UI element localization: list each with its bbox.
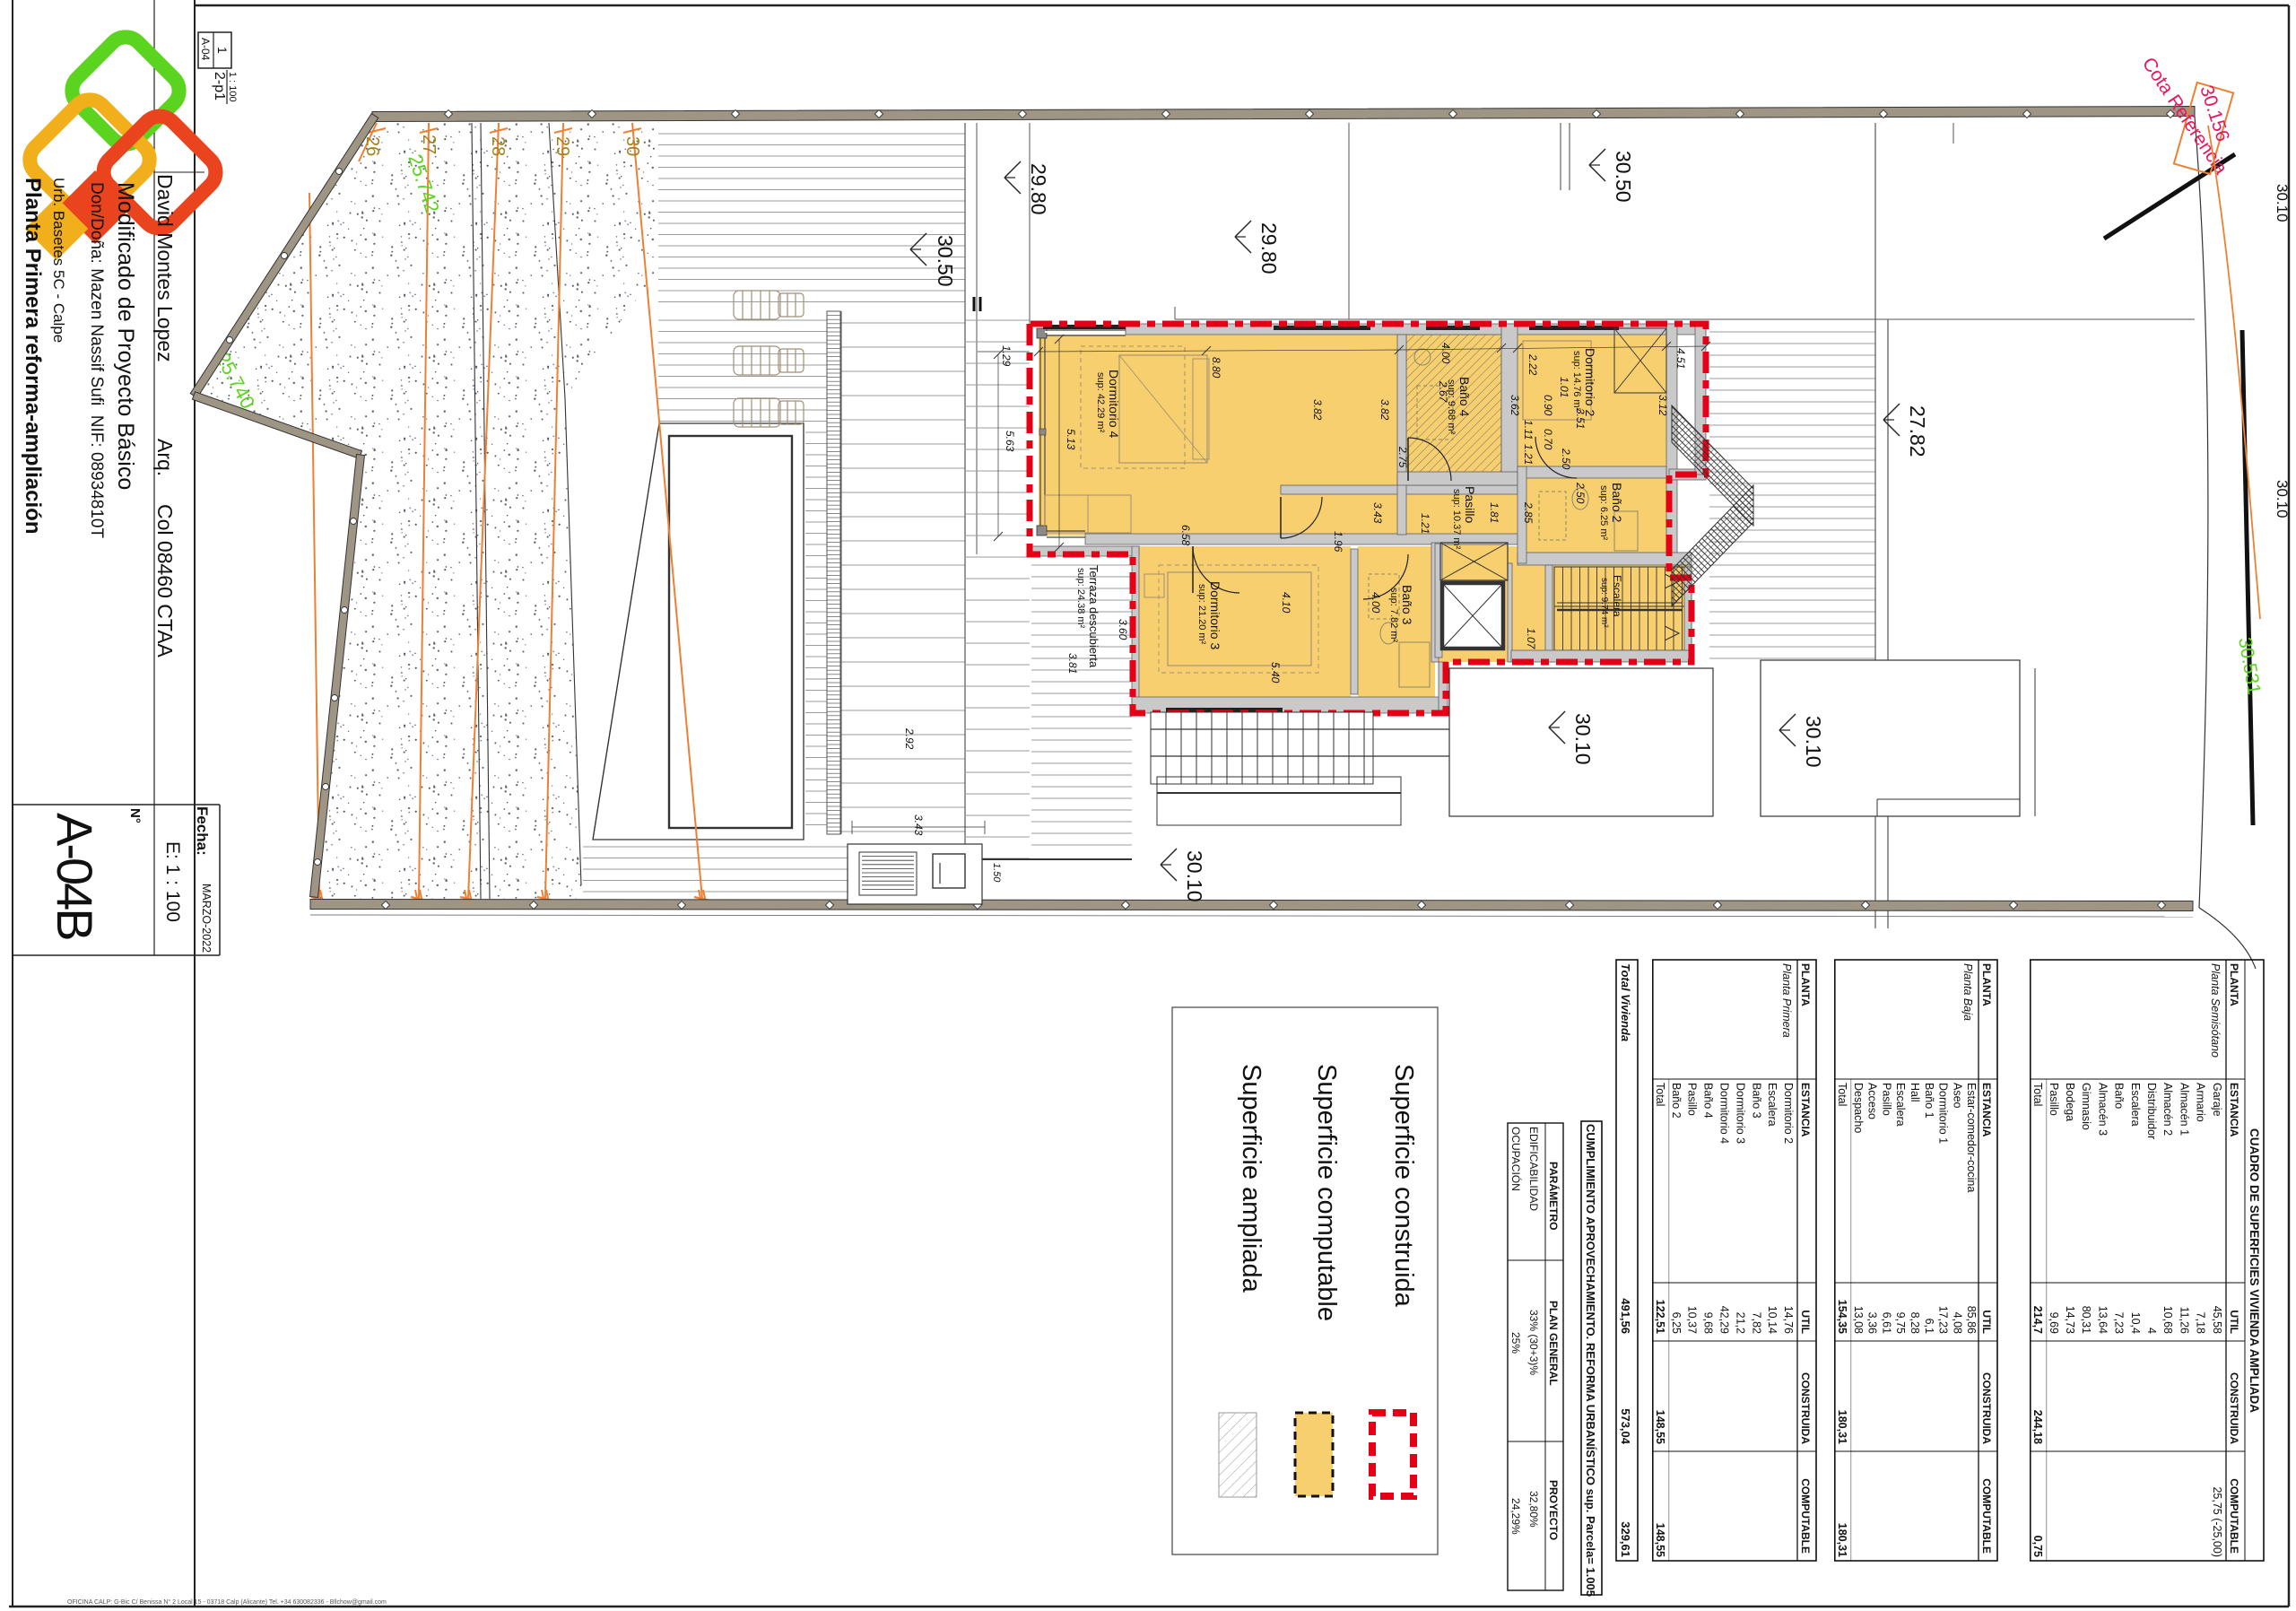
- svg-text:OCUPACIÓN: OCUPACIÓN: [1509, 1127, 1523, 1191]
- svg-text:Almacén 3: Almacén 3: [2096, 1083, 2109, 1136]
- svg-text:Total: Total: [2031, 1083, 2044, 1106]
- svg-text:33% (30+3)%: 33% (30+3)%: [1527, 1310, 1540, 1375]
- svg-text:CONSTRUIDA: CONSTRUIDA: [1980, 1372, 1993, 1444]
- svg-text:1.07: 1.07: [1525, 628, 1537, 650]
- svg-text:COMPUTABLE: COMPUTABLE: [1980, 1478, 1993, 1554]
- svg-text:Baño 1: Baño 1: [1923, 1083, 1935, 1119]
- svg-text:4,08: 4,08: [1951, 1312, 1963, 1334]
- svg-text:A-04: A-04: [199, 38, 212, 61]
- svg-text:30.50: 30.50: [934, 235, 957, 287]
- svg-text:Estar-comedor-cocina: Estar-comedor-cocina: [1965, 1083, 1978, 1192]
- svg-text:3.43: 3.43: [912, 814, 925, 836]
- svg-text:sup: 14.76 m²: sup: 14.76 m²: [1571, 351, 1582, 412]
- svg-text:Pasillo: Pasillo: [1880, 1083, 1892, 1116]
- svg-text:Col 08460 CTAA: Col 08460 CTAA: [153, 504, 177, 658]
- svg-text:sup: 24.38 m²: sup: 24.38 m²: [1075, 568, 1086, 629]
- svg-text:Pasillo: Pasillo: [1686, 1083, 1699, 1116]
- svg-text:PLANTA: PLANTA: [1799, 963, 1812, 1006]
- svg-text:Dormitorio 3: Dormitorio 3: [1208, 581, 1222, 649]
- svg-text:0,75: 0,75: [2031, 1536, 2044, 1557]
- svg-text:1.81: 1.81: [1488, 502, 1500, 523]
- svg-text:30: 30: [622, 136, 642, 156]
- svg-text:Total: Total: [1654, 1083, 1666, 1106]
- svg-text:13,64: 13,64: [2096, 1306, 2109, 1334]
- svg-text:Modificado de Proyecto Básico: Modificado de Proyecto Básico: [113, 182, 138, 490]
- svg-text:6.58: 6.58: [1179, 525, 1192, 546]
- svg-text:Planta Baja: Planta Baja: [1961, 963, 1974, 1021]
- svg-text:A-04B: A-04B: [47, 813, 103, 939]
- svg-text:Despacho: Despacho: [1852, 1083, 1865, 1133]
- svg-text:CUADRO DE SUPERFICIES VIVIENDA: CUADRO DE SUPERFICIES VIVIENDA AMPLIADA: [2248, 1128, 2261, 1413]
- svg-text:Planta Primera reforma-ampliac: Planta Primera reforma-ampliación: [21, 178, 45, 534]
- svg-text:14,76: 14,76: [1782, 1306, 1795, 1334]
- svg-text:1.21: 1.21: [1419, 513, 1431, 534]
- svg-text:CONSTRUIDA: CONSTRUIDA: [1799, 1372, 1812, 1444]
- svg-text:1.50: 1.50: [991, 863, 1002, 883]
- svg-text:2.92: 2.92: [903, 727, 916, 750]
- svg-text:9,75: 9,75: [1894, 1312, 1907, 1334]
- svg-text:2.85: 2.85: [1522, 501, 1535, 524]
- svg-text:Superficie computable: Superficie computable: [1312, 1064, 1341, 1321]
- svg-text:4.00: 4.00: [1439, 343, 1452, 364]
- svg-text:1.29: 1.29: [1000, 345, 1013, 367]
- svg-text:30.10: 30.10: [2274, 184, 2291, 222]
- svg-text:Superficie ampliada: Superficie ampliada: [1237, 1064, 1265, 1293]
- svg-text:Escalera: Escalera: [1766, 1083, 1779, 1127]
- svg-text:PARÁMETRO: PARÁMETRO: [1547, 1162, 1561, 1230]
- svg-text:Dormitorio 4: Dormitorio 4: [1718, 1083, 1731, 1144]
- svg-text:4.51: 4.51: [1674, 348, 1687, 369]
- svg-text:Acceso: Acceso: [1866, 1083, 1879, 1119]
- svg-text:45,58: 45,58: [2211, 1306, 2223, 1334]
- svg-text:6,25: 6,25: [1670, 1312, 1683, 1334]
- svg-text:10,4: 10,4: [2129, 1312, 2142, 1334]
- svg-text:0.90: 0.90: [1542, 395, 1554, 416]
- svg-text:Planta Primera: Planta Primera: [1780, 963, 1793, 1038]
- svg-text:3.43: 3.43: [1371, 502, 1384, 524]
- svg-text:Arq.: Arq.: [153, 439, 177, 476]
- svg-text:Distribuidor: Distribuidor: [2145, 1083, 2158, 1139]
- svg-text:Baño 2: Baño 2: [1670, 1083, 1683, 1119]
- svg-text:2.75: 2.75: [1396, 446, 1409, 468]
- svg-text:27.82: 27.82: [1906, 405, 1929, 457]
- svg-text:3.60: 3.60: [1117, 619, 1129, 640]
- svg-text:491,56: 491,56: [1619, 1298, 1632, 1334]
- svg-text:573,04: 573,04: [1619, 1408, 1632, 1445]
- svg-text:ESTANCIA: ESTANCIA: [2228, 1083, 2240, 1137]
- svg-text:sup: 42.29 m²: sup: 42.29 m²: [1095, 372, 1106, 433]
- svg-text:30.10: 30.10: [2274, 480, 2291, 518]
- svg-text:9,68: 9,68: [1702, 1312, 1715, 1334]
- svg-text:9,69: 9,69: [2048, 1312, 2060, 1334]
- svg-text:1: 1: [215, 47, 230, 54]
- svg-text:148,55: 148,55: [1654, 1523, 1666, 1557]
- svg-text:2.67: 2.67: [1437, 380, 1449, 404]
- svg-text:Armario: Armario: [2195, 1083, 2207, 1122]
- svg-text:UTIL: UTIL: [2228, 1310, 2240, 1334]
- svg-text:30.50: 30.50: [1612, 151, 1635, 203]
- svg-text:Don/Doña: Mazen Nassif Sufi N: Don/Doña: Mazen Nassif Sufi NIF: 0893481…: [87, 182, 106, 538]
- svg-text:PLANTA: PLANTA: [1980, 963, 1993, 1006]
- svg-text:154,35: 154,35: [1836, 1300, 1848, 1334]
- svg-text:3.12: 3.12: [1657, 395, 1669, 416]
- svg-text:1 : 100: 1 : 100: [227, 72, 238, 102]
- svg-text:OFICINA CALP: G-Bic C/ Benissa: OFICINA CALP: G-Bic C/ Benissa N° 2 Loca…: [67, 1598, 387, 1606]
- svg-text:29.80: 29.80: [1257, 222, 1281, 274]
- svg-text:Dormitorio 2: Dormitorio 2: [1782, 1083, 1795, 1144]
- svg-text:25%: 25%: [1509, 1332, 1522, 1354]
- svg-text:UTIL: UTIL: [1799, 1310, 1812, 1334]
- svg-text:sup: 10.37 m²: sup: 10.37 m²: [1451, 489, 1462, 550]
- svg-text:329,61: 329,61: [1619, 1521, 1632, 1557]
- svg-text:1.01: 1.01: [1558, 377, 1570, 397]
- svg-text:29.80: 29.80: [1027, 163, 1050, 215]
- svg-text:COMPUTABLE: COMPUTABLE: [1799, 1478, 1812, 1554]
- svg-text:Aseo: Aseo: [1951, 1083, 1963, 1109]
- svg-text:10,14: 10,14: [1766, 1306, 1779, 1334]
- svg-text:sup: 6.25 m²: sup: 6.25 m²: [1598, 485, 1609, 540]
- svg-text:ESTANCIA: ESTANCIA: [1980, 1083, 1993, 1137]
- svg-text:244,18: 244,18: [2031, 1410, 2044, 1444]
- svg-text:UTIL: UTIL: [1980, 1310, 1993, 1334]
- svg-text:3.51: 3.51: [1574, 408, 1587, 429]
- svg-text:6,1: 6,1: [1923, 1319, 1935, 1334]
- svg-text:180,31: 180,31: [1836, 1410, 1848, 1444]
- svg-text:CONSTRUIDA: CONSTRUIDA: [2228, 1372, 2240, 1444]
- svg-text:Baño 2: Baño 2: [1610, 483, 1624, 523]
- svg-text:2.50: 2.50: [1560, 448, 1572, 470]
- svg-text:Superficie construida: Superficie construida: [1389, 1064, 1418, 1308]
- svg-text:David Montes Lopez: David Montes Lopez: [153, 174, 177, 362]
- svg-text:42,29: 42,29: [1718, 1306, 1731, 1334]
- svg-text:30.10: 30.10: [1571, 713, 1595, 765]
- svg-text:Baño 3: Baño 3: [1400, 585, 1414, 625]
- svg-text:Urb. Basetes 5C - Calpe: Urb. Basetes 5C - Calpe: [50, 178, 67, 343]
- svg-text:Dormitorio 1: Dormitorio 1: [1937, 1083, 1950, 1144]
- svg-text:14,73: 14,73: [2064, 1306, 2076, 1334]
- svg-text:sup: 21.20 m²: sup: 21.20 m²: [1196, 584, 1207, 645]
- svg-text:10,37: 10,37: [1686, 1306, 1699, 1334]
- svg-text:7,82: 7,82: [1750, 1312, 1762, 1334]
- svg-text:Hall: Hall: [1909, 1083, 1921, 1102]
- svg-text:32,80%: 32,80%: [1527, 1491, 1540, 1528]
- svg-text:4: 4: [2145, 1328, 2158, 1334]
- svg-text:Escalera: Escalera: [1894, 1083, 1907, 1127]
- svg-text:PROYECTO: PROYECTO: [1547, 1480, 1560, 1540]
- svg-text:3.62: 3.62: [1509, 395, 1521, 416]
- svg-text:3,36: 3,36: [1866, 1312, 1879, 1334]
- svg-text:80,31: 80,31: [2080, 1306, 2092, 1334]
- svg-text:E: 1 : 100: E: 1 : 100: [162, 841, 183, 922]
- svg-text:Almacén 2: Almacén 2: [2161, 1083, 2174, 1136]
- svg-text:4.10: 4.10: [1280, 592, 1292, 614]
- svg-text:N°: N°: [127, 808, 143, 823]
- svg-text:27: 27: [419, 135, 439, 154]
- svg-text:EDIFICABILIDAD: EDIFICABILIDAD: [1527, 1127, 1540, 1211]
- svg-text:Almacén 1: Almacén 1: [2178, 1083, 2190, 1136]
- svg-text:5.63: 5.63: [1004, 431, 1016, 452]
- svg-text:13,08: 13,08: [1852, 1306, 1865, 1334]
- svg-text:Dormitorio 3: Dormitorio 3: [1734, 1083, 1746, 1144]
- svg-text:Dormitorio 4: Dormitorio 4: [1107, 370, 1121, 438]
- svg-text:148,55: 148,55: [1654, 1410, 1666, 1444]
- svg-text:2-p1: 2-p1: [212, 72, 227, 100]
- svg-text:10,68: 10,68: [2161, 1306, 2174, 1334]
- svg-text:0.70: 0.70: [1542, 429, 1554, 450]
- svg-text:Baño: Baño: [2113, 1083, 2126, 1109]
- svg-text:Gimnasio: Gimnasio: [2080, 1083, 2092, 1130]
- svg-text:Fecha:: Fecha:: [194, 806, 211, 856]
- svg-text:85,86: 85,86: [1965, 1306, 1978, 1334]
- svg-text:Baño 4: Baño 4: [1702, 1083, 1715, 1119]
- svg-text:Total Vivienda: Total Vivienda: [1619, 963, 1632, 1041]
- svg-text:3.82: 3.82: [1311, 399, 1324, 421]
- svg-text:180,31: 180,31: [1836, 1523, 1848, 1557]
- svg-text:PLANTA: PLANTA: [2228, 963, 2240, 1006]
- svg-text:PLAN GENERAL: PLAN GENERAL: [1547, 1301, 1560, 1386]
- svg-text:30.10: 30.10: [1183, 850, 1206, 902]
- svg-text:8,28: 8,28: [1909, 1312, 1921, 1334]
- svg-text:1.96: 1.96: [1332, 531, 1344, 553]
- svg-text:Garaje: Garaje: [2211, 1083, 2223, 1117]
- svg-text:3.81: 3.81: [1066, 653, 1079, 674]
- svg-text:MARZO-2022: MARZO-2022: [200, 884, 213, 953]
- svg-text:25,75 (-25,00): 25,75 (-25,00): [2211, 1486, 2223, 1557]
- svg-text:Total: Total: [1836, 1083, 1848, 1106]
- svg-text:5.40: 5.40: [1269, 662, 1282, 684]
- svg-text:6,61: 6,61: [1880, 1312, 1892, 1334]
- svg-text:Baño 3: Baño 3: [1750, 1083, 1762, 1119]
- svg-text:1.11: 1.11: [1522, 420, 1535, 440]
- svg-text:sup: 7.82 m²: sup: 7.82 m²: [1388, 588, 1399, 642]
- svg-text:Bodega: Bodega: [2064, 1083, 2076, 1121]
- svg-text:21,2: 21,2: [1734, 1312, 1746, 1334]
- svg-text:214,7: 214,7: [2031, 1306, 2044, 1334]
- svg-text:Pasillo: Pasillo: [2048, 1083, 2060, 1116]
- svg-text:Pasillo: Pasillo: [1463, 486, 1477, 523]
- svg-text:Baño 4: Baño 4: [1457, 377, 1472, 417]
- svg-text:2.50: 2.50: [1574, 482, 1587, 504]
- svg-text:7,23: 7,23: [2113, 1312, 2126, 1334]
- svg-text:COMPUTABLE: COMPUTABLE: [2228, 1478, 2240, 1554]
- svg-text:ESTANCIA: ESTANCIA: [1799, 1083, 1812, 1137]
- svg-text:7,18: 7,18: [2195, 1312, 2207, 1334]
- svg-text:8.80: 8.80: [1210, 357, 1222, 379]
- svg-text:1.21: 1.21: [1522, 444, 1535, 465]
- svg-text:30.10: 30.10: [1802, 716, 1825, 768]
- svg-text:26: 26: [362, 136, 382, 156]
- svg-text:24,29%: 24,29%: [1509, 1498, 1522, 1535]
- svg-text:17,23: 17,23: [1937, 1306, 1950, 1334]
- svg-text:Escalera: Escalera: [1611, 575, 1623, 617]
- svg-text:3.82: 3.82: [1378, 399, 1391, 421]
- svg-text:Escalera: Escalera: [2129, 1083, 2142, 1127]
- svg-text:28: 28: [488, 136, 508, 156]
- svg-text:2.22: 2.22: [1526, 353, 1539, 376]
- svg-text:4.00: 4.00: [1370, 592, 1382, 614]
- svg-text:122,51: 122,51: [1654, 1300, 1666, 1334]
- svg-text:sup: 9.74 m²: sup: 9.74 m²: [1599, 578, 1609, 628]
- svg-text:CUMPLIMIENTO APROVECHAMIENTO.: CUMPLIMIENTO APROVECHAMIENTO. REFORMA UR…: [1584, 1124, 1597, 1597]
- svg-text:Terraza descubierta: Terraza descubierta: [1087, 565, 1100, 668]
- svg-text:Dormitorio 2: Dormitorio 2: [1583, 348, 1597, 416]
- svg-text:5.13: 5.13: [1065, 429, 1077, 450]
- svg-text:11,26: 11,26: [2178, 1307, 2190, 1334]
- svg-text:29: 29: [552, 136, 572, 156]
- svg-text:Planta Semisótano: Planta Semisótano: [2209, 963, 2222, 1058]
